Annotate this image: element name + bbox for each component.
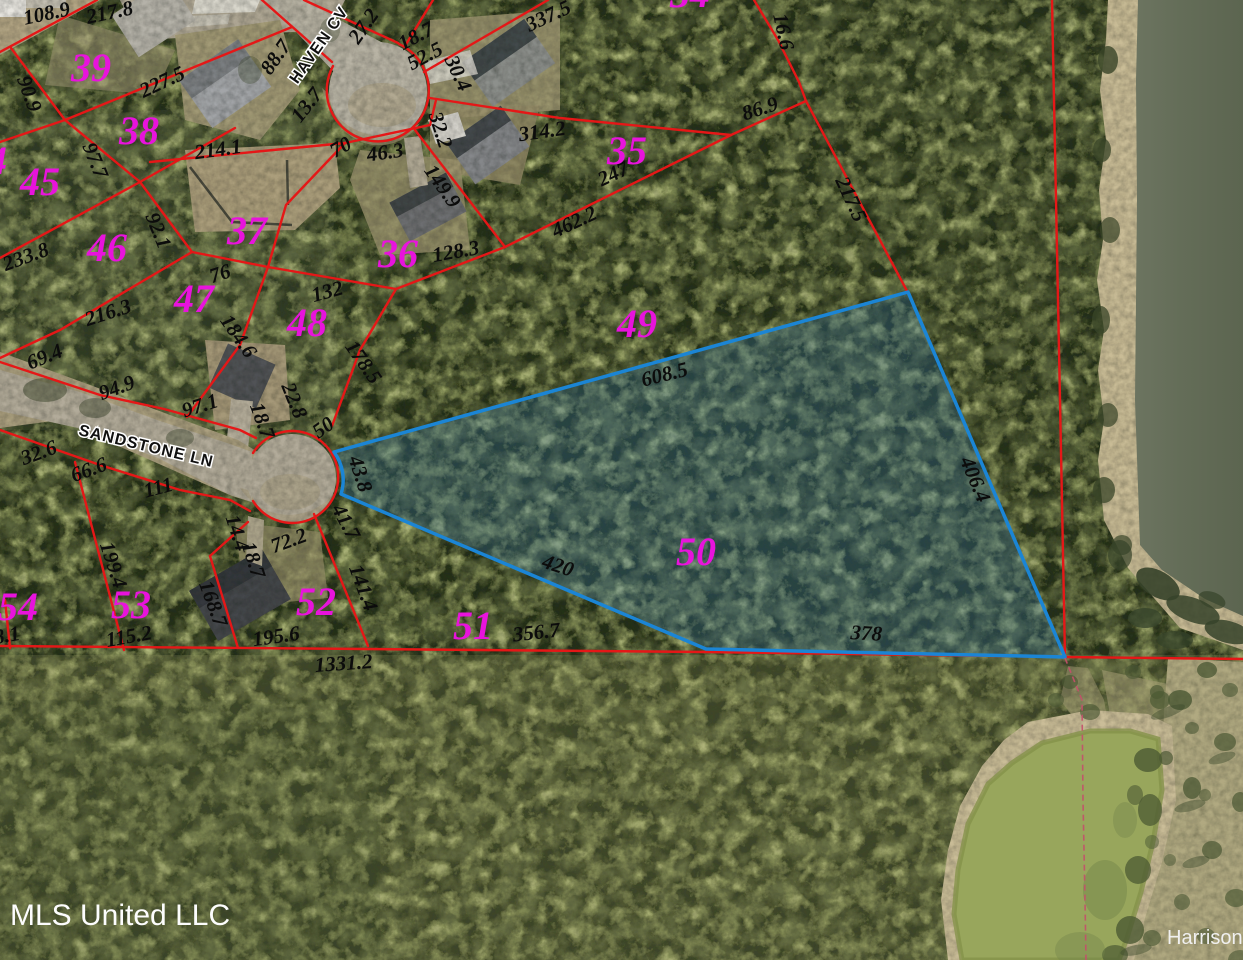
svg-text:1331.2: 1331.2	[314, 649, 374, 677]
svg-text:49: 49	[616, 301, 657, 346]
svg-text:35: 35	[606, 128, 647, 173]
svg-text:378: 378	[849, 620, 883, 646]
svg-text:48: 48	[286, 300, 327, 345]
svg-text:36: 36	[377, 231, 418, 276]
svg-text:Harrison Co: Harrison Co	[1167, 927, 1243, 949]
svg-text:37: 37	[226, 208, 269, 253]
svg-text:47: 47	[173, 276, 216, 321]
svg-text:54: 54	[0, 584, 38, 629]
svg-text:34: 34	[669, 0, 710, 16]
svg-text:39: 39	[70, 45, 111, 90]
svg-text:MLS United LLC: MLS United LLC	[10, 899, 230, 932]
svg-text:46: 46	[86, 225, 127, 270]
svg-text:53: 53	[111, 582, 151, 627]
svg-text:38: 38	[118, 108, 159, 153]
svg-text:45: 45	[19, 159, 60, 204]
svg-text:44: 44	[0, 138, 7, 183]
svg-text:50: 50	[676, 529, 716, 574]
svg-text:52: 52	[296, 579, 336, 624]
svg-text:51: 51	[453, 603, 493, 648]
